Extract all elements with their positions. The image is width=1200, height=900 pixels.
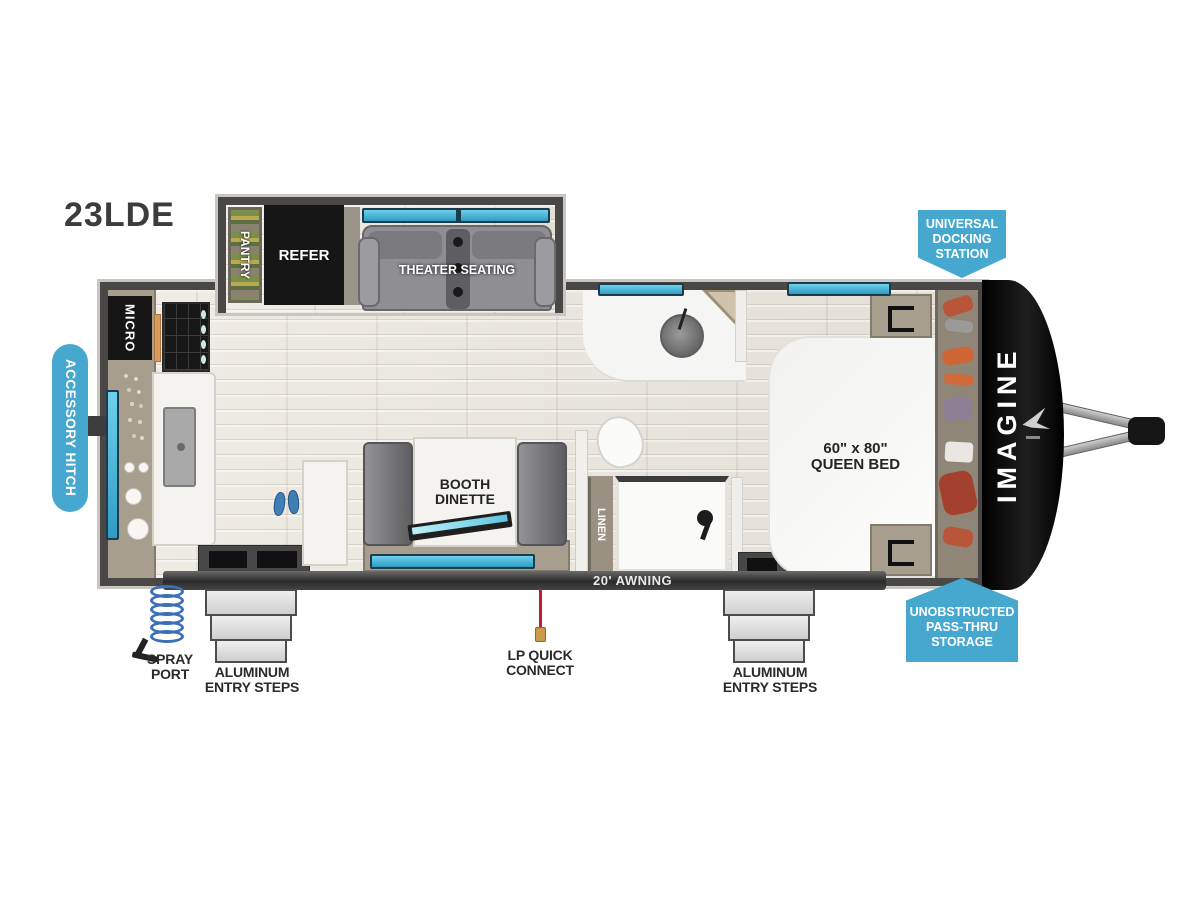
vanity-sink bbox=[660, 314, 704, 358]
main-floor: MICRO bbox=[108, 290, 978, 578]
lp-quick-connect-label: LP QUICK CONNECT bbox=[488, 648, 592, 677]
dish-small bbox=[124, 462, 135, 473]
brand-logo-icon bbox=[1020, 408, 1050, 435]
slide-out-floor: PANTRY REFER THEATER SEATING bbox=[226, 205, 555, 313]
bedroom-wall-upper bbox=[735, 290, 747, 362]
refrigerator: REFER bbox=[264, 205, 344, 305]
entry-steps-rear bbox=[723, 589, 815, 663]
awning-bar: 20' AWNING bbox=[163, 571, 886, 590]
nightstand-top bbox=[870, 294, 932, 338]
front-storage bbox=[935, 290, 978, 578]
pass-thru-storage-badge: UNOBSTRUCTED PASS-THRU STORAGE bbox=[906, 578, 1018, 662]
flip-flop bbox=[272, 491, 286, 516]
dinette-bench-right bbox=[517, 442, 567, 546]
floorplan-page: 23LDE MICRO bbox=[0, 0, 1200, 900]
microwave: MICRO bbox=[108, 296, 152, 360]
toilet bbox=[590, 410, 650, 474]
entry-mat-main bbox=[198, 545, 310, 573]
bed-type-label: QUEEN BED bbox=[811, 457, 900, 473]
rear-window bbox=[106, 390, 119, 540]
cutting-board bbox=[154, 314, 161, 362]
stove bbox=[162, 302, 210, 372]
bathroom-window bbox=[598, 283, 684, 296]
brand-text: IMAGINE bbox=[992, 314, 1023, 534]
kitchen-sink bbox=[163, 407, 196, 487]
pantry-label: PANTRY bbox=[238, 231, 252, 279]
bath-partition-wall bbox=[575, 430, 588, 574]
theater-label: THEATER SEATING bbox=[364, 263, 550, 277]
dish-large bbox=[127, 518, 149, 540]
entry-steps-front-label: ALUMINUM ENTRY STEPS bbox=[192, 665, 312, 694]
slideout-window bbox=[362, 208, 550, 223]
dinette-window bbox=[370, 554, 535, 569]
universal-docking-badge: UNIVERSAL DOCKING STATION bbox=[918, 210, 1006, 278]
bedroom-window bbox=[787, 282, 891, 296]
tv-stand bbox=[302, 460, 348, 566]
hitch-coupler bbox=[1128, 417, 1165, 445]
shower bbox=[615, 476, 729, 572]
lp-fitting bbox=[535, 627, 546, 642]
lp-line bbox=[539, 589, 542, 629]
flip-flop bbox=[287, 490, 300, 515]
dinette-label-line2: DINETTE bbox=[435, 492, 495, 507]
bed-size-label: 60" x 80" bbox=[811, 441, 900, 457]
pantry-cabinet: PANTRY bbox=[228, 207, 262, 303]
nightstand-bottom bbox=[870, 524, 932, 576]
dinette-bench-left bbox=[363, 442, 413, 546]
accessory-hitch-stub bbox=[86, 416, 106, 436]
linen-cabinet: LINEN bbox=[588, 476, 613, 572]
entry-steps-rear-label: ALUMINUM ENTRY STEPS bbox=[710, 665, 830, 694]
microwave-label: MICRO bbox=[123, 304, 138, 352]
slide-out: PANTRY REFER THEATER SEATING bbox=[218, 197, 563, 313]
refer-label: REFER bbox=[279, 247, 330, 264]
theater-seating: THEATER SEATING bbox=[362, 225, 552, 311]
awning-label: 20' AWNING bbox=[593, 573, 672, 588]
dish-medium bbox=[125, 488, 142, 505]
trailer-main-body: MICRO bbox=[100, 282, 986, 586]
page-title: 23LDE bbox=[64, 196, 175, 235]
linen-label: LINEN bbox=[595, 508, 607, 541]
dinette-label-line1: BOOTH bbox=[435, 477, 495, 492]
utensil-dots bbox=[124, 374, 128, 378]
front-cap: IMAGINE bbox=[982, 280, 1064, 590]
accessory-hitch-badge: ACCESSORY HITCH bbox=[52, 344, 88, 512]
dish-small bbox=[138, 462, 149, 473]
